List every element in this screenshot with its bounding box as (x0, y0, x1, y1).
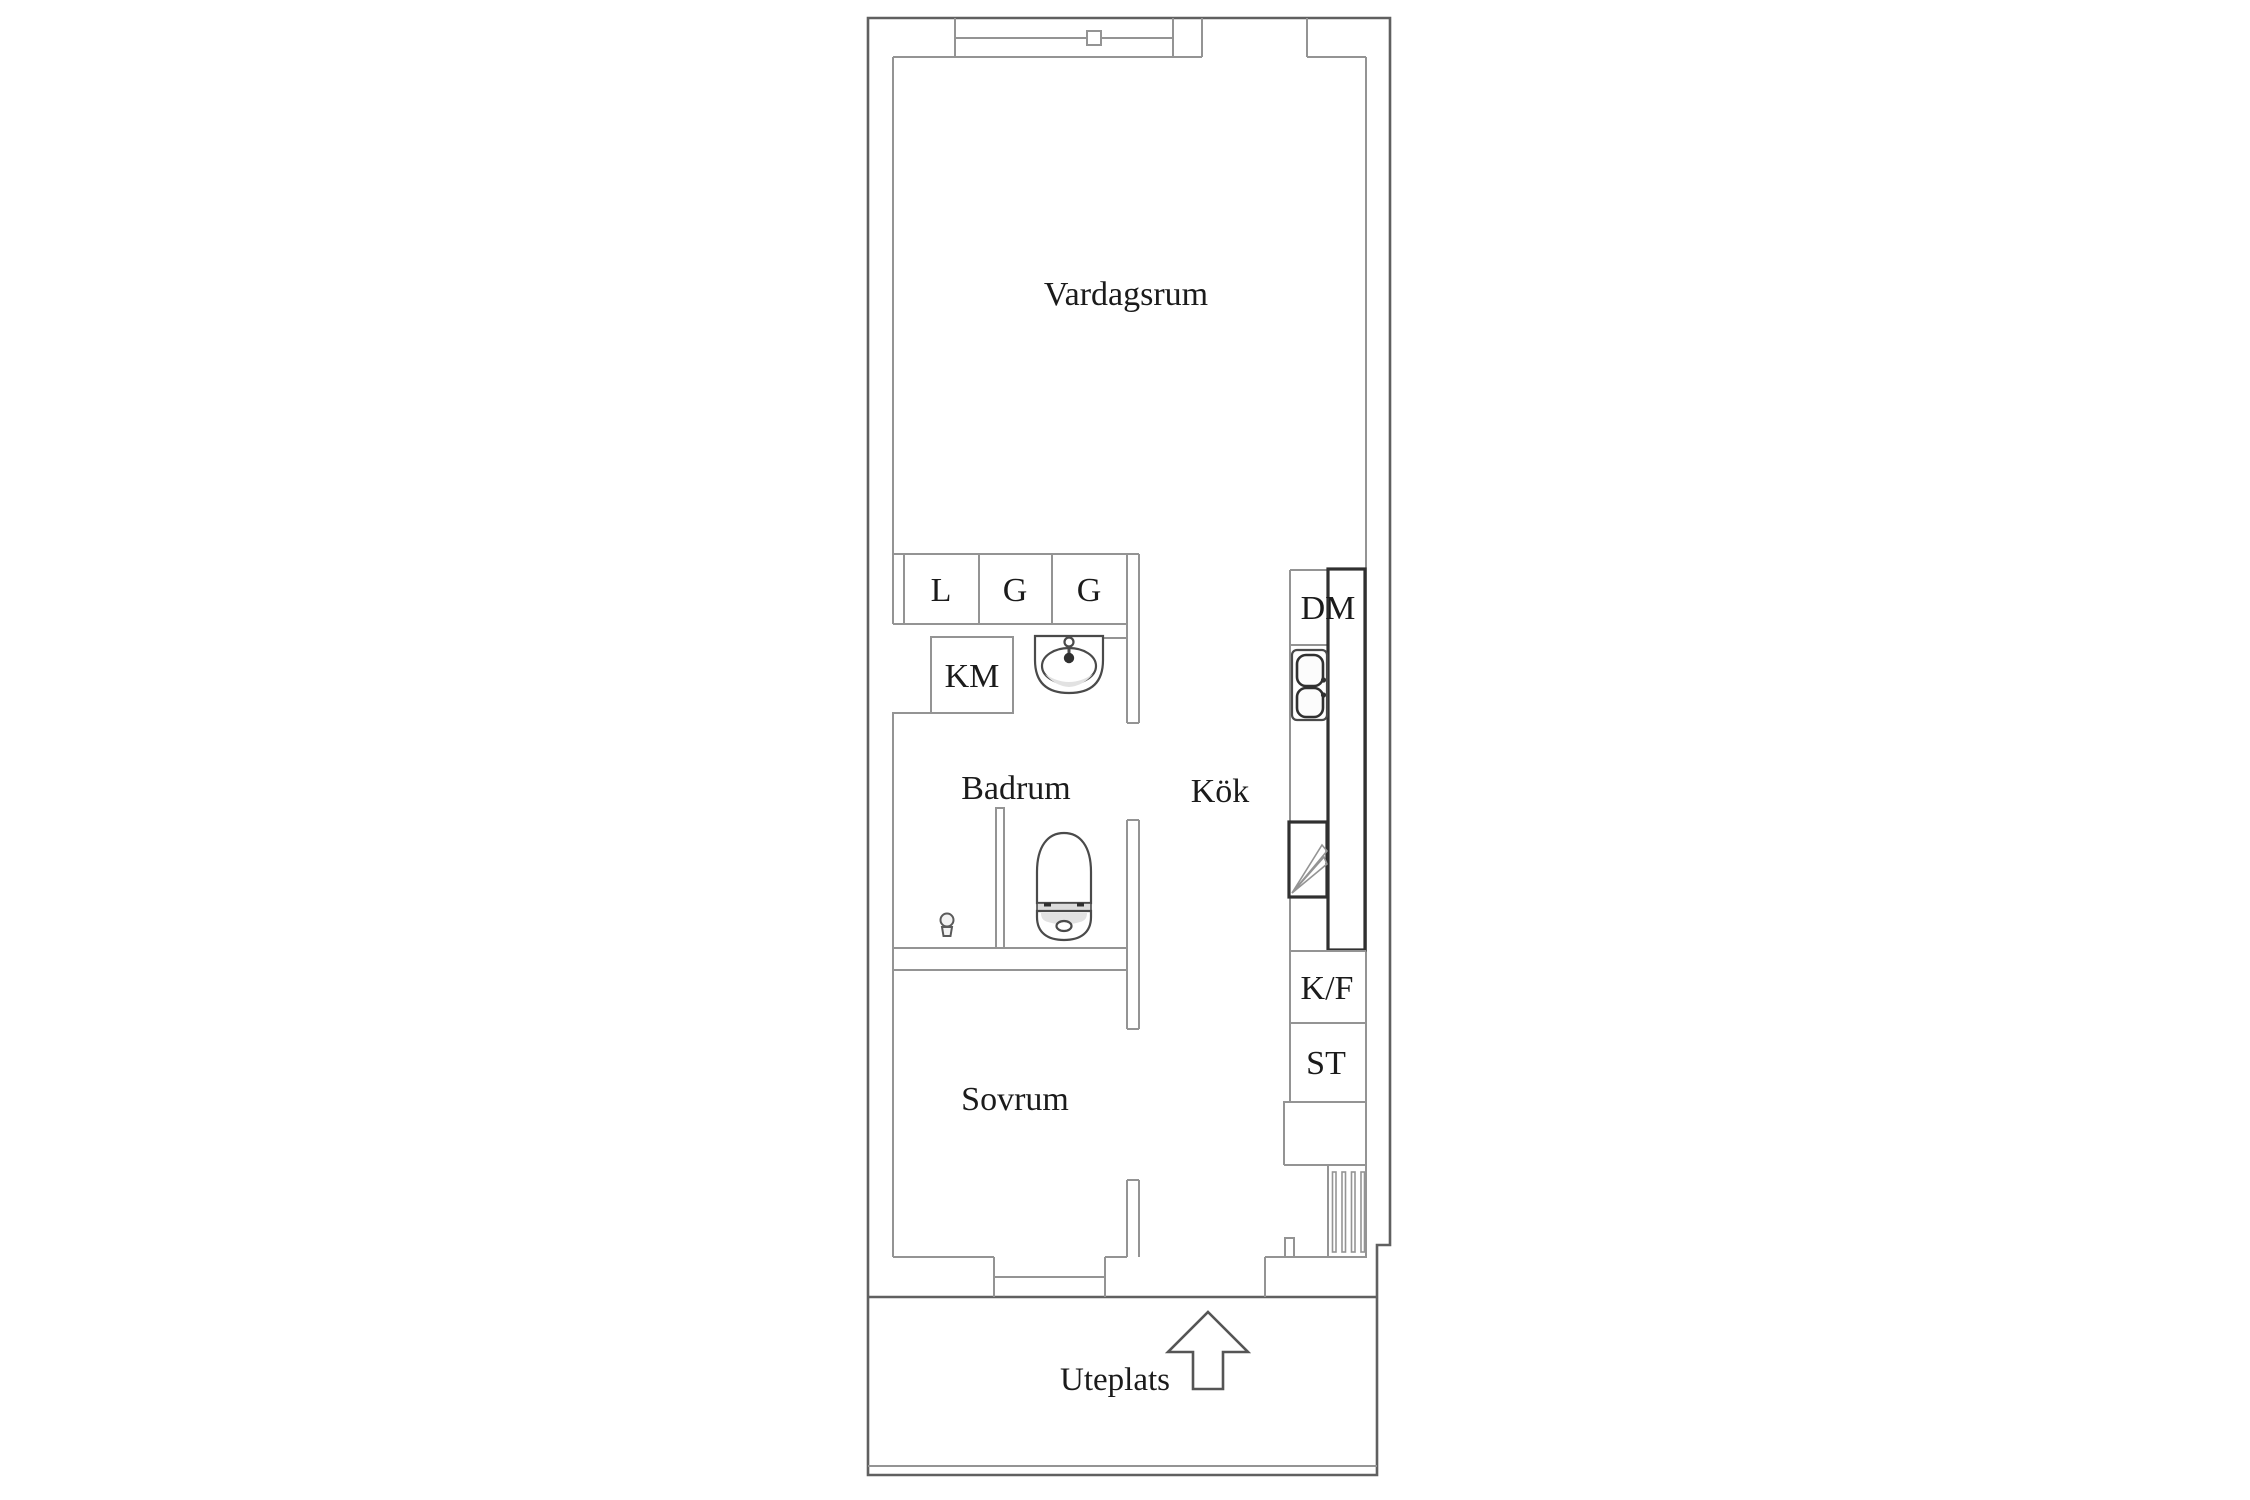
floor-plan-svg: Vardagsrum L G G KM DM Badrum Kök K/F ST… (0, 0, 2250, 1500)
top-wall (893, 18, 1366, 1165)
patio-label: Uteplats (1060, 1362, 1170, 1398)
bedroom (893, 1257, 1127, 1297)
entrance-direction-arrow-icon (1168, 1312, 1248, 1389)
floor-drain-icon (941, 914, 954, 937)
closet-g2-label: G (1077, 572, 1102, 609)
closet-g1-label: G (1003, 572, 1028, 609)
washing-machine-label: KM (945, 658, 1000, 695)
bedroom-label: Sovrum (961, 1081, 1069, 1118)
kitchen-counter (1283, 569, 1366, 1102)
door-jamb-stub (1285, 1238, 1294, 1257)
floor-plan-page: Vardagsrum L G G KM DM Badrum Kök K/F ST… (0, 0, 2250, 1500)
window-mullion-square (1087, 31, 1101, 45)
top-wall-pillar (1173, 18, 1202, 57)
kitchen-label: Kök (1191, 773, 1250, 810)
top-right-wall (1307, 18, 1366, 57)
living-room-label: Vardagsrum (1044, 276, 1208, 313)
radiator-icon (1328, 1165, 1366, 1257)
bathroom-sink-icon (1035, 636, 1103, 693)
toilet-icon (1037, 833, 1091, 940)
fridge-freezer-label: K/F (1301, 970, 1354, 1007)
stove-icon (1289, 822, 1327, 897)
bathroom-south-wall (893, 948, 1127, 970)
kitchen-sink-icon (1292, 650, 1327, 720)
bottom-right-wall (1265, 1102, 1366, 1297)
closet-l-label: L (931, 572, 952, 609)
bedroom-window (994, 1257, 1105, 1297)
dishwasher-label: DM (1301, 590, 1356, 627)
bathroom-label: Badrum (961, 770, 1071, 807)
shower-partition (996, 808, 1004, 948)
storage-label: ST (1306, 1045, 1346, 1082)
bathroom-kitchen-wall (1127, 554, 1139, 1257)
living-room-window (955, 18, 1173, 57)
